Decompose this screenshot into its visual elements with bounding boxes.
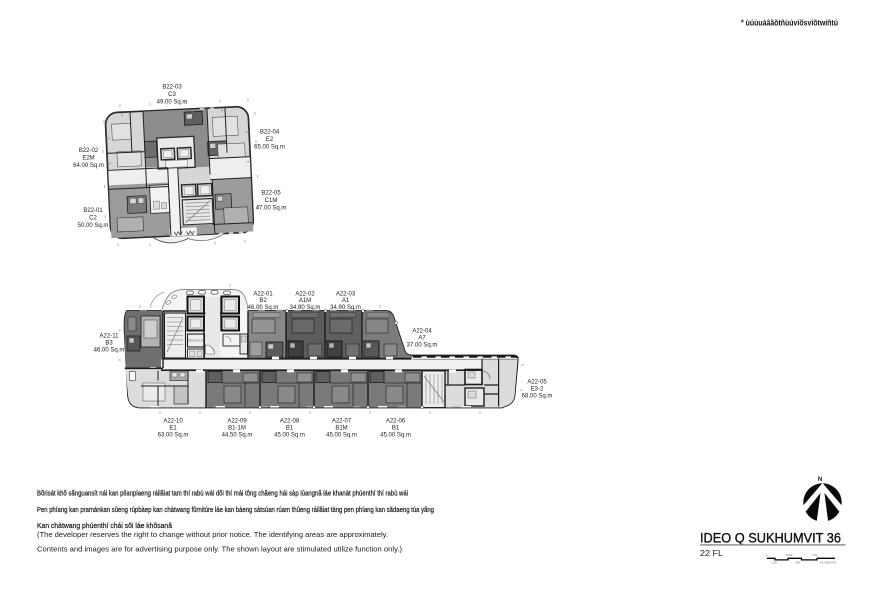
svg-text:A22-07: A22-07 bbox=[332, 419, 352, 425]
svg-text:B22-05: B22-05 bbox=[261, 191, 281, 197]
svg-text:0: 0 bbox=[766, 554, 768, 558]
svg-text:Kan chàtwang phúenthí chái sõi: Kan chàtwang phúenthí chái sõi láe khõsa… bbox=[37, 521, 173, 530]
svg-text:B22-01: B22-01 bbox=[83, 208, 103, 214]
svg-text:C1M: C1M bbox=[265, 198, 278, 204]
svg-text:68.00 Sq.m: 68.00 Sq.m bbox=[522, 394, 553, 400]
svg-text:A22-11: A22-11 bbox=[100, 334, 120, 340]
svg-text:34.00 Sq.m: 34.00 Sq.m bbox=[290, 305, 321, 311]
svg-text:45.00 Sq.m: 45.00 Sq.m bbox=[274, 433, 305, 439]
svg-text:64.00 Sq.m: 64.00 Sq.m bbox=[73, 163, 104, 169]
svg-text:A22-08: A22-08 bbox=[280, 419, 300, 425]
svg-text:A22-09: A22-09 bbox=[227, 419, 247, 425]
svg-text:44.50 Sq.m: 44.50 Sq.m bbox=[222, 433, 253, 439]
svg-text:IDEO Q SUKHUMVIT 36: IDEO Q SUKHUMVIT 36 bbox=[700, 531, 841, 546]
svg-text:Contents and images are for ad: Contents and images are for advertising … bbox=[37, 545, 402, 554]
svg-text:A22-04: A22-04 bbox=[412, 329, 432, 335]
svg-text:65.00 Sq.m: 65.00 Sq.m bbox=[254, 145, 285, 151]
svg-text:B1-1M: B1-1M bbox=[228, 426, 246, 432]
svg-text:A1M: A1M bbox=[299, 298, 311, 304]
svg-text:A22-02: A22-02 bbox=[295, 291, 315, 297]
svg-text:37.00 Sq.m: 37.00 Sq.m bbox=[407, 343, 438, 349]
svg-text:B1: B1 bbox=[286, 426, 294, 432]
svg-text:Pen phíang kan pramánkan sûeng: Pen phíang kan pramánkan sûeng rúpbàep k… bbox=[37, 505, 434, 514]
svg-text:3M5: 3M5 bbox=[795, 561, 801, 565]
svg-text:B22-02: B22-02 bbox=[79, 148, 99, 154]
svg-text:A22-05: A22-05 bbox=[527, 380, 547, 386]
svg-text:B1: B1 bbox=[392, 426, 400, 432]
svg-text:A7: A7 bbox=[418, 336, 426, 342]
svg-text:22 FL: 22 FL bbox=[700, 549, 724, 558]
svg-text:1.5M: 1.5M bbox=[771, 561, 777, 565]
svg-text:B3: B3 bbox=[105, 341, 113, 347]
svg-text:5M10: 5M10 bbox=[786, 553, 793, 557]
svg-text:C3: C3 bbox=[168, 92, 176, 98]
svg-text:KILOMETERS: KILOMETERS bbox=[820, 561, 837, 565]
svg-text:N: N bbox=[818, 477, 822, 483]
svg-text:SERVICE LIFT: SERVICE LIFT bbox=[187, 339, 205, 343]
svg-text:7M2: 7M2 bbox=[812, 553, 818, 557]
svg-text:45.00 Sq.m: 45.00 Sq.m bbox=[326, 433, 357, 439]
svg-text:63.00 Sq.m: 63.00 Sq.m bbox=[158, 433, 189, 439]
svg-text:E2: E2 bbox=[266, 137, 274, 143]
svg-text:46.00 Sq.m: 46.00 Sq.m bbox=[94, 348, 125, 354]
svg-text:(The developer reserves the ri: (The developer reserves the right to cha… bbox=[37, 530, 388, 539]
svg-text:B22-04: B22-04 bbox=[260, 130, 280, 136]
svg-text:B2: B2 bbox=[259, 298, 267, 304]
svg-text:46.00 Sq.m: 46.00 Sq.m bbox=[248, 305, 279, 311]
svg-text:47.00 Sq.m: 47.00 Sq.m bbox=[256, 206, 287, 212]
svg-text:34.00 Sq.m: 34.00 Sq.m bbox=[330, 305, 361, 311]
svg-text:A22-06: A22-06 bbox=[386, 419, 406, 425]
svg-text:B1M: B1M bbox=[335, 426, 347, 432]
svg-text:E1: E1 bbox=[169, 426, 177, 432]
svg-text:B22-03: B22-03 bbox=[162, 85, 182, 91]
svg-text:E2M: E2M bbox=[82, 156, 94, 162]
svg-text:A22-03: A22-03 bbox=[336, 291, 356, 297]
svg-text:45.00 Sq.m: 45.00 Sq.m bbox=[380, 433, 411, 439]
svg-text:A1: A1 bbox=[342, 298, 350, 304]
svg-text:A22-01: A22-01 bbox=[253, 291, 273, 297]
svg-text:Bõrisát khõ sãnguansít nái kan: Bõrisát khõ sãnguansít nái kan plíanplae… bbox=[37, 489, 408, 498]
svg-text:* ùúùuáâãõtñùúvíõsvîõtwíñtú: * ùúùuáâãõtñùúvíõsvîõtwíñtú bbox=[741, 19, 838, 28]
svg-text:E3-2: E3-2 bbox=[531, 387, 544, 393]
svg-text:A22-10: A22-10 bbox=[163, 419, 183, 425]
svg-text:C2: C2 bbox=[89, 216, 97, 222]
svg-text:50.00 Sq.m: 50.00 Sq.m bbox=[78, 223, 109, 229]
svg-text:49.00 Sq.m: 49.00 Sq.m bbox=[157, 100, 188, 106]
